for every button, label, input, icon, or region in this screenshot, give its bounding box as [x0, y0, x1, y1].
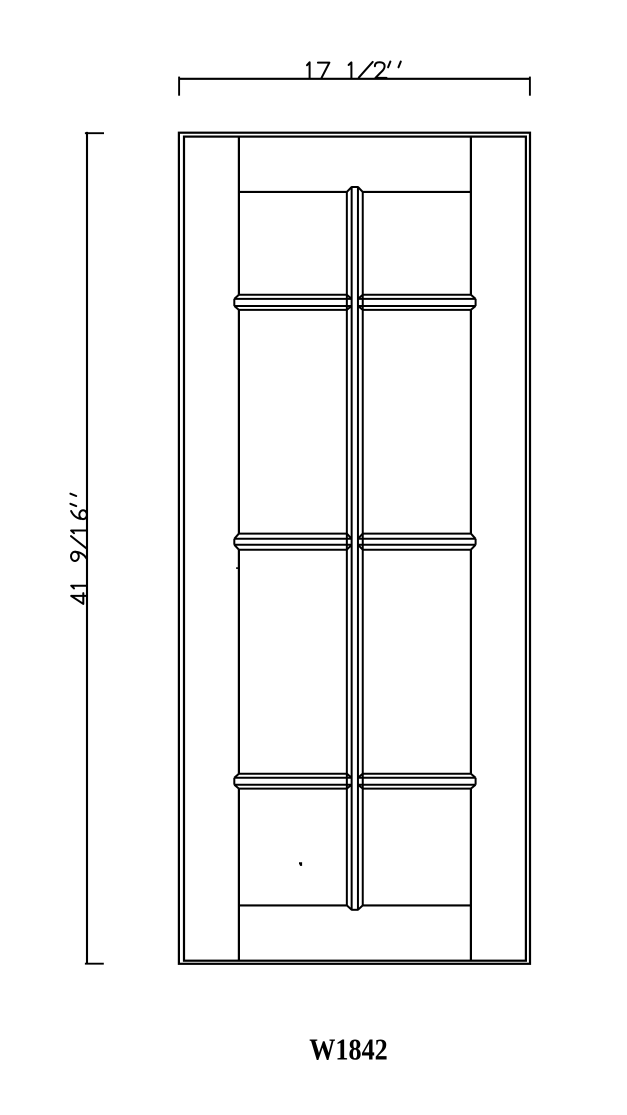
- svg-text:W1842: W1842: [309, 1033, 388, 1067]
